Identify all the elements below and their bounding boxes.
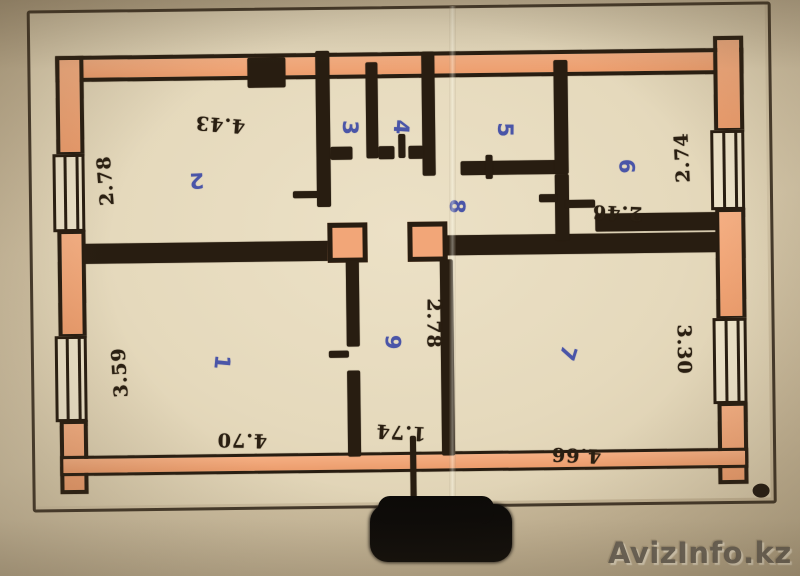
dim-room7-width: 4.66 [551,443,602,467]
dim-room2-depth: 2.78 [93,155,119,207]
window-panes [66,338,82,420]
dim-room2-width: 4.43 [194,111,246,137]
wall-hall-left-upper [346,261,360,347]
wall-room3-bottom [330,147,352,160]
room-number-3: 3 [338,120,362,135]
wall-room4-bottom [378,146,394,159]
room-number-2: 2 [189,168,205,193]
wall-left-segment [57,230,86,338]
door-tick-room6 [565,200,595,208]
wall-hall-right [440,259,455,455]
window-panes [722,132,738,208]
window-left-lower [55,336,88,422]
room-number-4: 4 [389,119,414,135]
wall-right-segment [715,208,746,320]
window-panes [63,156,79,230]
pillar-left [327,222,367,262]
window-panes [725,320,741,402]
room-number-5: 5 [493,122,517,137]
entry-door-line [410,436,417,504]
window-right-lower [712,318,747,404]
dim-room6-width: 2.46 [592,200,643,224]
vent-mark [247,57,285,87]
room-number-6: 6 [614,159,638,174]
room-number-8: 8 [445,199,469,214]
door-tick-room1 [329,351,349,358]
wall-room7-top [445,232,717,255]
door-tick-room8 [539,194,557,202]
wall-room2-right [315,51,331,207]
pillar-right [407,221,447,261]
wall-room1-room2-divider [84,241,330,264]
floor-plan-drawing: 2 1 3 4 5 6 7 8 9 4.43 2.78 2.74 2.46 3.… [0,0,800,581]
window-right-upper [710,130,745,210]
dim-hall-width: 1.74 [375,420,426,445]
wall-left-segment [55,56,84,156]
wall-right-segment [713,36,744,132]
dim-room1-width: 4.70 [217,428,268,451]
watermark-text: AvizInfo.kz [608,536,792,570]
wall-hall-left-lower [347,370,361,456]
redaction-blob [370,504,512,562]
dim-room1-depth: 3.59 [108,347,133,399]
wall-room5-bottom [461,160,563,175]
door-tick-room2 [293,191,319,198]
wall-room5-room6-divider [553,60,568,174]
room-number-1: 1 [209,354,234,371]
dim-room7-depth: 3.30 [673,324,696,375]
room-number-9: 9 [380,334,405,350]
dim-hall-depth: 2.78 [422,298,444,348]
window-left-upper [52,154,85,232]
scanned-floor-plan-photo: 2 1 3 4 5 6 7 8 9 4.43 2.78 2.74 2.46 3.… [0,0,800,576]
wall-right-segment [718,402,749,484]
door-tick-room5 [485,155,492,179]
dim-room6-depth: 2.74 [670,132,694,183]
door-tick-room4 [398,134,405,158]
wall-room3-room4-divider [365,62,378,158]
wall-room4-bottom [408,146,423,159]
